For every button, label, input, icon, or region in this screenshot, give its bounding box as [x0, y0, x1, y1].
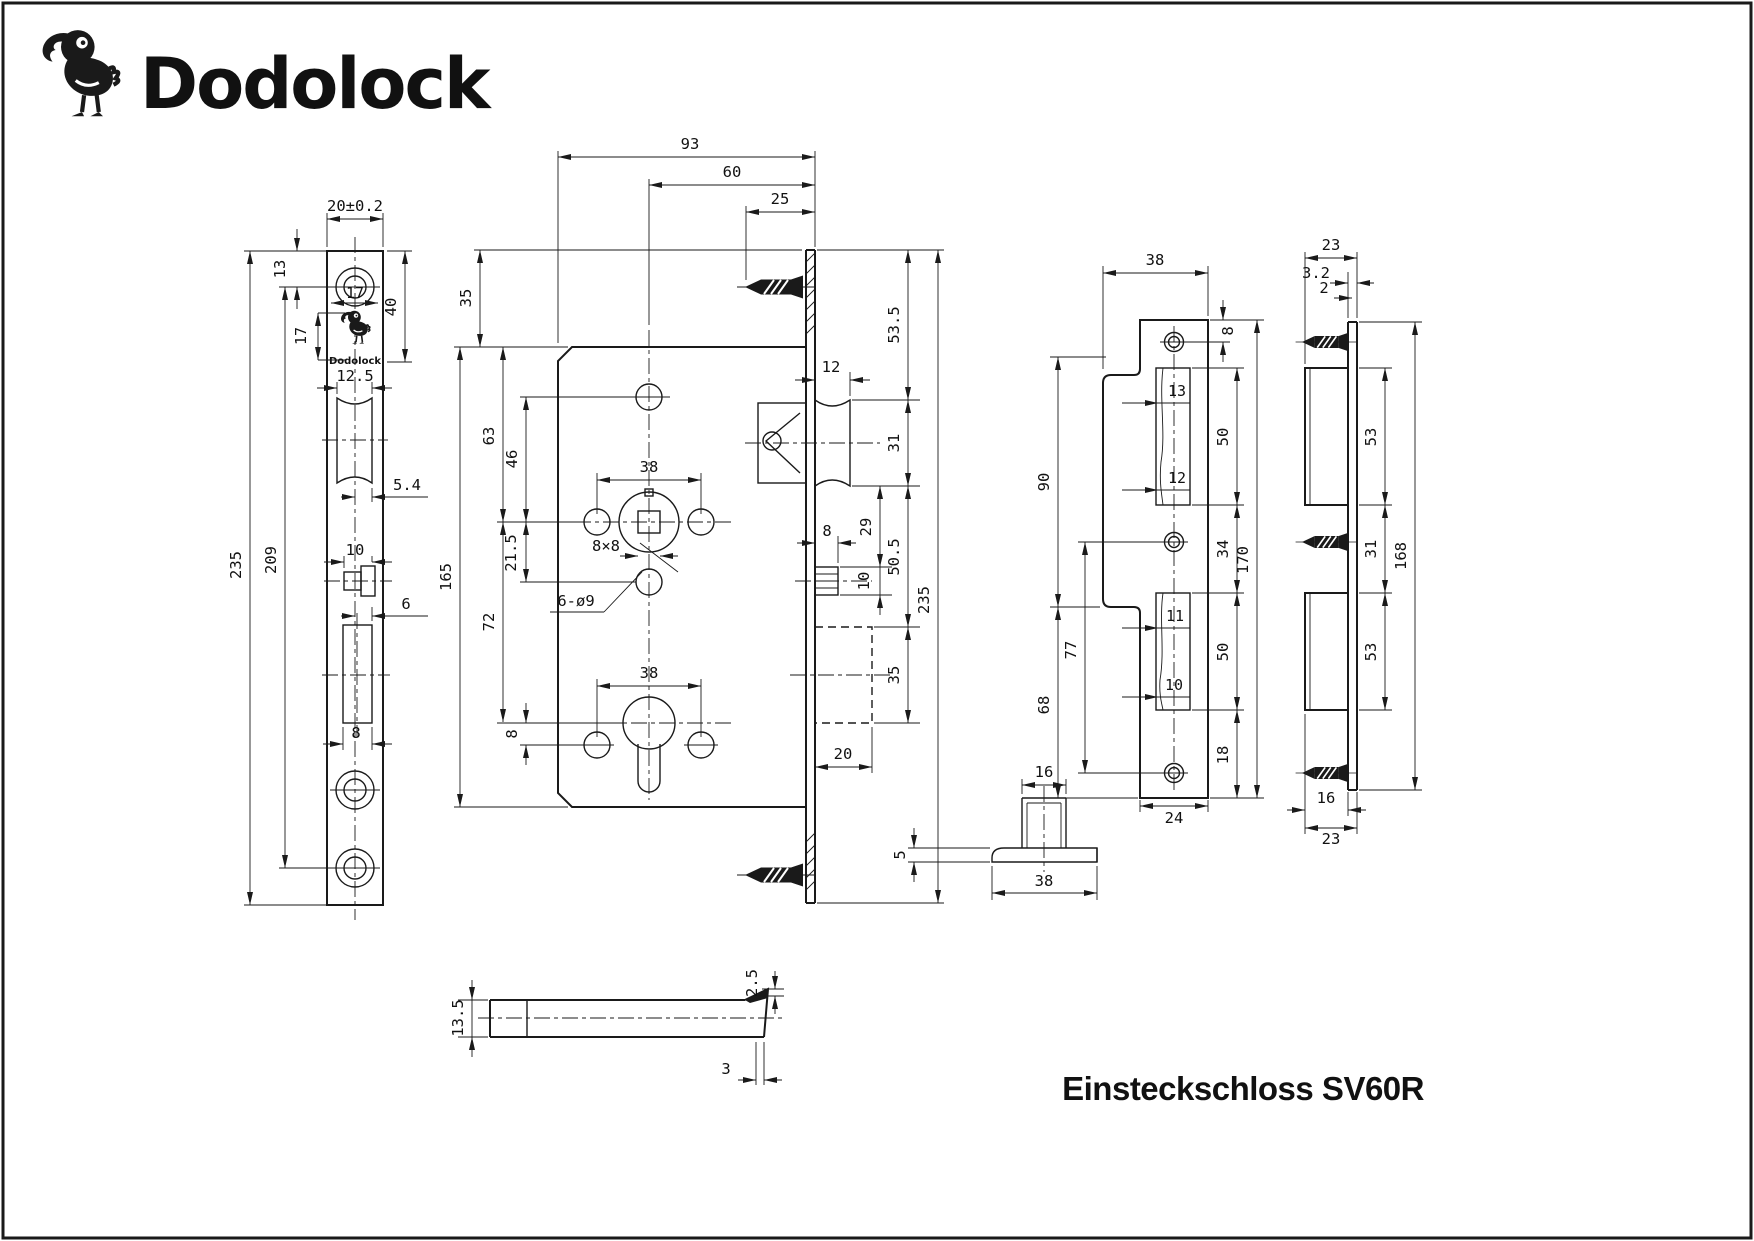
- bolt-box-profile: [1305, 593, 1348, 710]
- view-strike-plate: 13 12 11 10 38 8 50 34 50 18 170: [1035, 251, 1264, 827]
- dim-label: 12: [1168, 469, 1186, 487]
- brand-name: Dodolock: [140, 43, 492, 125]
- view-strike-side: 3.2 2 23 53 31 53 168 16 23: [1287, 236, 1422, 848]
- view-latch-side: 13.5 2.5 3: [449, 969, 785, 1085]
- dim-label: 17: [292, 327, 310, 345]
- dim-label: 77: [1062, 641, 1080, 660]
- dim-label: 8×8: [592, 537, 620, 555]
- dim-label: 11: [1166, 607, 1184, 625]
- dim-label: 3: [721, 1060, 730, 1078]
- sheet-border: [3, 3, 1751, 1238]
- dim-label: 17: [346, 284, 364, 302]
- dim-label: 5: [891, 850, 909, 859]
- dim-label: 29: [857, 518, 875, 537]
- dim-label: 2.5: [743, 969, 761, 997]
- faceplate-hatching: [806, 253, 815, 890]
- dim-label: 8: [1219, 326, 1237, 335]
- drawing-sheet: Dodolock Dodolock 20±0.2 13: [0, 0, 1754, 1241]
- dim-label: 168: [1392, 542, 1410, 570]
- dim-label: 8: [822, 522, 831, 540]
- dim-label: 165: [437, 563, 455, 591]
- dim-label: 18: [1214, 746, 1232, 765]
- dim-label: 21.5: [502, 534, 520, 571]
- guide-base: [992, 848, 1097, 862]
- dim-label: 35: [457, 289, 475, 308]
- dim-label: 34: [1214, 540, 1232, 559]
- dim-label: 53: [1362, 428, 1380, 447]
- dim-label: 20: [834, 745, 853, 763]
- dim-label: 2: [1319, 279, 1328, 297]
- brand-logo: Dodolock: [43, 30, 492, 125]
- dim-label: 38: [640, 458, 659, 476]
- dim-label: 8: [351, 724, 360, 742]
- technical-drawing: Dodolock Dodolock 20±0.2 13: [0, 0, 1754, 1241]
- dim-label: 209: [262, 546, 280, 574]
- mounting-screw-icon: [737, 276, 815, 299]
- dim-label: 40: [382, 298, 400, 317]
- dim-label: 10: [1165, 676, 1183, 694]
- plate-dodo-icon: [341, 311, 370, 344]
- dim-label: 235: [227, 551, 245, 579]
- drawing-title: Einsteckschloss SV60R: [1062, 1070, 1425, 1107]
- dim-label: 24: [1165, 809, 1184, 827]
- dim-label: 60: [723, 163, 742, 181]
- dim-label: 53: [1362, 643, 1380, 662]
- mounting-screw-icon: [737, 864, 815, 887]
- dim-label: 13: [271, 260, 289, 279]
- latch-box-profile: [1305, 368, 1348, 505]
- dim-label: 50: [1214, 428, 1232, 447]
- dim-label: 31: [1362, 540, 1380, 559]
- dim-label: 20±0.2: [327, 197, 383, 215]
- dim-label: 46: [503, 450, 521, 469]
- dim-label: 12: [822, 358, 841, 376]
- dim-label: 38: [1146, 251, 1165, 269]
- dim-label: 12.5: [336, 367, 373, 385]
- dim-label: 10: [855, 572, 873, 591]
- dim-label: 35: [885, 666, 903, 685]
- dim-label: 23: [1322, 830, 1341, 848]
- dim-label: 53.5: [885, 306, 903, 343]
- dim-label: 63: [480, 427, 498, 446]
- dim-label: 38: [1035, 872, 1054, 890]
- dim-label: 93: [681, 135, 700, 153]
- dim-label: 68: [1035, 696, 1053, 715]
- dodo-bird-icon: [43, 30, 119, 116]
- dim-label: 72: [480, 613, 498, 632]
- dim-label: 50.5: [885, 538, 903, 575]
- view-lock-body: 93 60 25 35 165 63 72 46 21.5 8 38: [437, 135, 944, 903]
- dim-label: 90: [1035, 473, 1053, 492]
- view-faceplate-front: Dodolock 20±0.2 13 17 17: [227, 197, 428, 920]
- dim-label: 5.4: [393, 476, 421, 494]
- dim-label: 10: [346, 541, 365, 559]
- view-guide-side: 16 5 38: [891, 763, 1097, 900]
- dim-label: 31: [885, 434, 903, 453]
- dim-label: 16: [1035, 763, 1054, 781]
- dim-label: 25: [771, 190, 790, 208]
- plate-brand-text: Dodolock: [329, 356, 381, 367]
- dim-label: 6-ø9: [557, 592, 594, 610]
- lock-case-outline: [558, 347, 806, 807]
- dim-label: 38: [640, 664, 659, 682]
- dim-label: 16: [1317, 789, 1336, 807]
- dim-label: 23: [1322, 236, 1341, 254]
- dim-label: 8: [503, 729, 521, 738]
- dim-label: 13.5: [449, 999, 467, 1036]
- dim-label: 6: [401, 595, 410, 613]
- dim-label: 235: [915, 586, 933, 614]
- dim-label: 13: [1168, 382, 1186, 400]
- dim-label: 170: [1234, 546, 1252, 574]
- dim-label: 50: [1214, 643, 1232, 662]
